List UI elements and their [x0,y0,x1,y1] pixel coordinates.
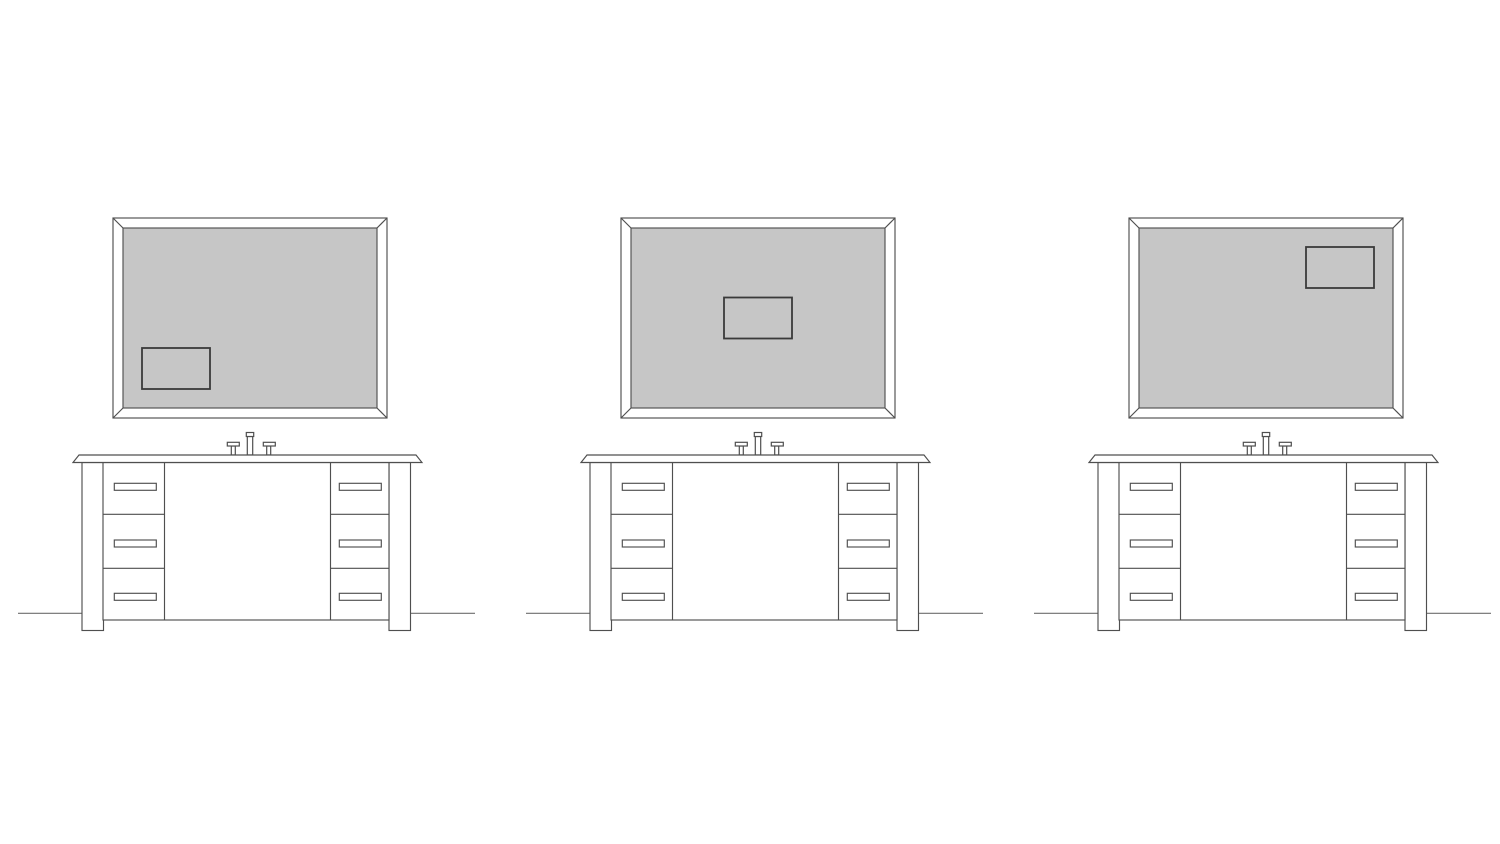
drawer-handle-right-1 [847,483,889,490]
vanity-leg-left [590,463,612,631]
vanity-leg-right [1405,463,1427,631]
faucet-handle-left-stem [1247,446,1251,455]
vanity-unit-right [1034,218,1491,631]
drawer-handle-left-2 [622,540,664,547]
faucet-spout-cap [754,433,761,437]
faucet-handle-right-bar [1279,442,1291,446]
vanity-leg-left [1098,463,1120,631]
faucet-spout-body [247,437,252,456]
drawer-handle-right-2 [1355,540,1397,547]
faucet-handle-left-bar [735,442,747,446]
drawer-handle-right-1 [339,483,381,490]
faucet-handle-left-stem [231,446,235,455]
faucet-handle-left-stem [739,446,743,455]
drawer-handle-right-3 [1355,593,1397,600]
mirror-glass [1139,228,1393,408]
drawer-handle-left-1 [1130,483,1172,490]
vanity-leg-right [897,463,919,631]
drawer-handle-left-1 [114,483,156,490]
faucet-spout-body [755,437,760,456]
faucet-handle-right-stem [1283,446,1287,455]
faucet-handle-right-stem [267,446,271,455]
countertop [581,455,930,463]
drawer-handle-left-2 [1130,540,1172,547]
drawer-handle-right-2 [339,540,381,547]
mirror-glass [631,228,885,408]
drawer-handle-left-3 [114,593,156,600]
faucet-handle-left-bar [1243,442,1255,446]
faucet-spout-body [1263,437,1268,456]
drawer-handle-right-1 [1355,483,1397,490]
mirror-glass [123,228,377,408]
faucet-handle-right-bar [771,442,783,446]
vanity-leg-left [82,463,104,631]
faucet-handle-right-bar [263,442,275,446]
faucet-handle-left-bar [227,442,239,446]
vanity-unit-left [18,218,475,631]
scene-svg [0,0,1500,844]
vanity-elevation-drawing [0,0,1500,844]
countertop [73,455,422,463]
faucet-spout-cap [1262,433,1269,437]
drawer-handle-right-3 [339,593,381,600]
drawer-handle-right-2 [847,540,889,547]
drawer-handle-right-3 [847,593,889,600]
drawer-handle-left-1 [622,483,664,490]
vanity-unit-middle [526,218,983,631]
faucet-spout-cap [246,433,253,437]
vanity-leg-right [389,463,411,631]
countertop [1089,455,1438,463]
faucet-handle-right-stem [775,446,779,455]
drawer-handle-left-3 [1130,593,1172,600]
drawer-handle-left-3 [622,593,664,600]
drawer-handle-left-2 [114,540,156,547]
